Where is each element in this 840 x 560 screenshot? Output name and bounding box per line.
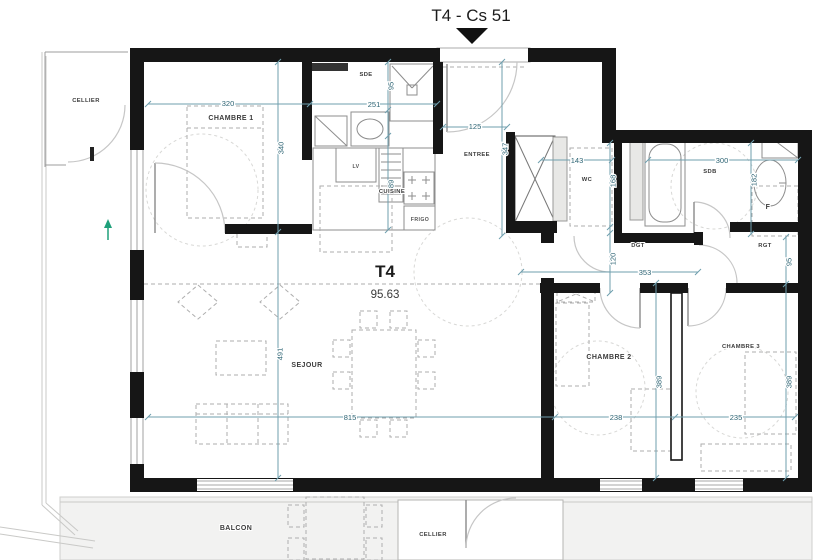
dim-chambre1-width: 320 [222,99,235,108]
bed-chambre1 [187,106,263,218]
bay-window [197,479,293,491]
hob [404,172,434,204]
unit-type-label: T4 [375,262,395,281]
dining-table [352,330,416,418]
room-label-cellier-bottom: CELLIER [419,532,447,538]
kitchen-units [313,148,435,252]
room-label-dgt: DGT [631,243,644,249]
dim-sdb-width: 300 [716,156,729,165]
unit-area-label: 95.63 [371,289,400,301]
cellier-top-outline [45,52,128,167]
sofa [196,404,288,444]
cellier-top-door-arc [68,105,125,162]
landscape-marker-icon [104,219,112,240]
dim-sejour-height: 491 [276,348,285,361]
entrance-arrow-icon [456,28,488,44]
coffee-table [216,341,266,375]
floor-plan-canvas: 320 251 95 125 347 143 168 300 182 120 3… [0,0,840,560]
bed-chambre2 [556,303,589,386]
window [129,300,145,372]
appliance-label-lv: LV [352,164,359,170]
armchair [260,285,300,319]
dim-chambre3-width: 235 [730,413,743,422]
window [600,479,642,491]
armchair [178,285,218,319]
dim-sde-depth: 95 [387,82,396,90]
room-label-balcon: BALCON [220,525,252,532]
window [129,418,145,464]
room-label-chambre3: CHAMBRE 3 [722,344,760,350]
dim-sejour-width: 815 [344,413,357,422]
windows [129,150,743,491]
dim-chambre2-width: 238 [610,413,623,422]
dim-sde-width: 251 [368,100,381,109]
dim-chambre1-height: 340 [277,142,286,155]
cellier-bottom-outline [398,498,563,560]
window [695,479,743,491]
dim-dgt-width: 353 [639,268,652,277]
dim-entree-height: 347 [501,143,510,156]
appliance-label-f: F [766,204,771,211]
bathtub [645,140,685,226]
room-label-cellier-top: CELLIER [72,98,100,104]
room-label-cuisine: CUISINE [379,189,405,195]
chambre2-door-arc [600,288,640,328]
dim-sdb-height: 182 [750,174,759,187]
kitchen-island [320,186,392,252]
room-label-sde: SDE [359,72,372,78]
chambre3-door-arc [688,288,726,326]
room-label-chambre2: CHAMBRE 2 [586,354,631,361]
wc-door-arc [574,236,610,272]
dim-rgt-height: 95 [785,258,794,266]
window [129,150,145,250]
nightstand [237,232,267,247]
room-label-sejour: SEJOUR [291,362,322,369]
room-label-wc: WC [582,177,593,183]
dim-dgt-height: 120 [609,253,618,266]
turning-circles [146,134,788,438]
room-label-entree: ENTREE [464,152,490,158]
duct [630,140,643,220]
page-title: T4 - Cs 51 [431,6,510,25]
partition-wall [671,293,682,460]
desk-chambre2 [631,389,673,451]
appliance-label-frigo: FRIGO [411,217,429,223]
wardrobe-bar [306,63,348,71]
floor-plan-page: 320 251 95 125 347 143 168 300 182 120 3… [0,0,840,560]
room-label-rgt: RGT [758,243,771,249]
dim-chambre3-height: 389 [785,376,794,389]
shaft [515,136,555,222]
duct [553,137,567,221]
wardrobe-chambre3 [701,444,791,471]
rgt-door-arc [699,245,737,283]
entry-door-arc [447,62,517,132]
dim-wc-height: 168 [609,175,618,188]
shower [390,64,435,121]
room-label-chambre1: CHAMBRE 1 [208,115,253,122]
room-label-sdb: SDB [703,169,716,175]
dim-entree-width: 125 [469,122,482,131]
dim-wc-width: 143 [571,156,584,165]
chambre1-door-arc [155,163,225,233]
dim-chambre2-height: 389 [655,376,664,389]
